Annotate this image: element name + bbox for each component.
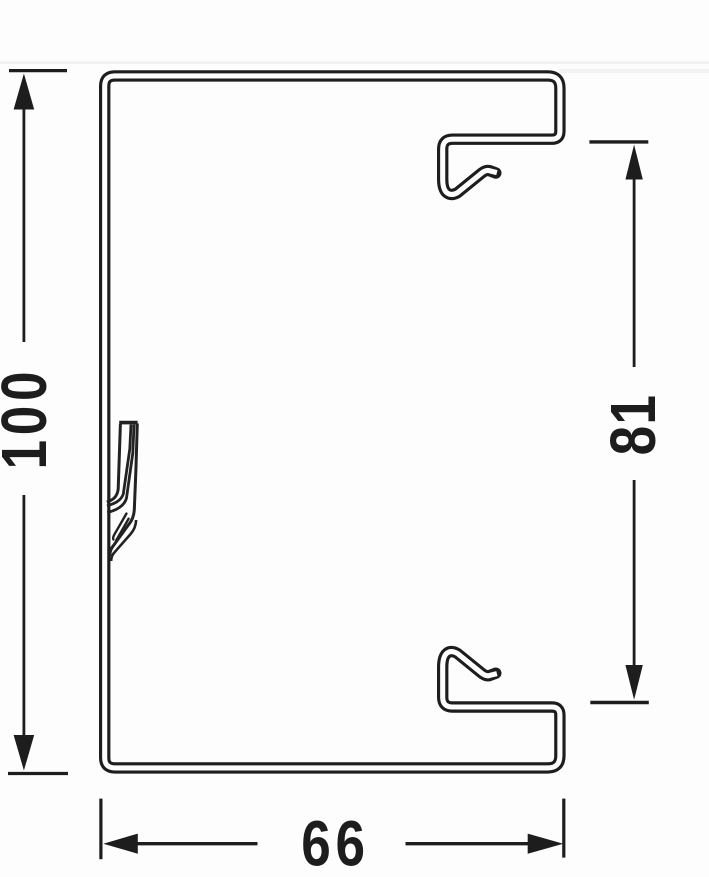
- svg-text:100: 100: [0, 367, 60, 470]
- svg-text:66: 66: [301, 809, 370, 877]
- svg-text:81: 81: [599, 394, 670, 456]
